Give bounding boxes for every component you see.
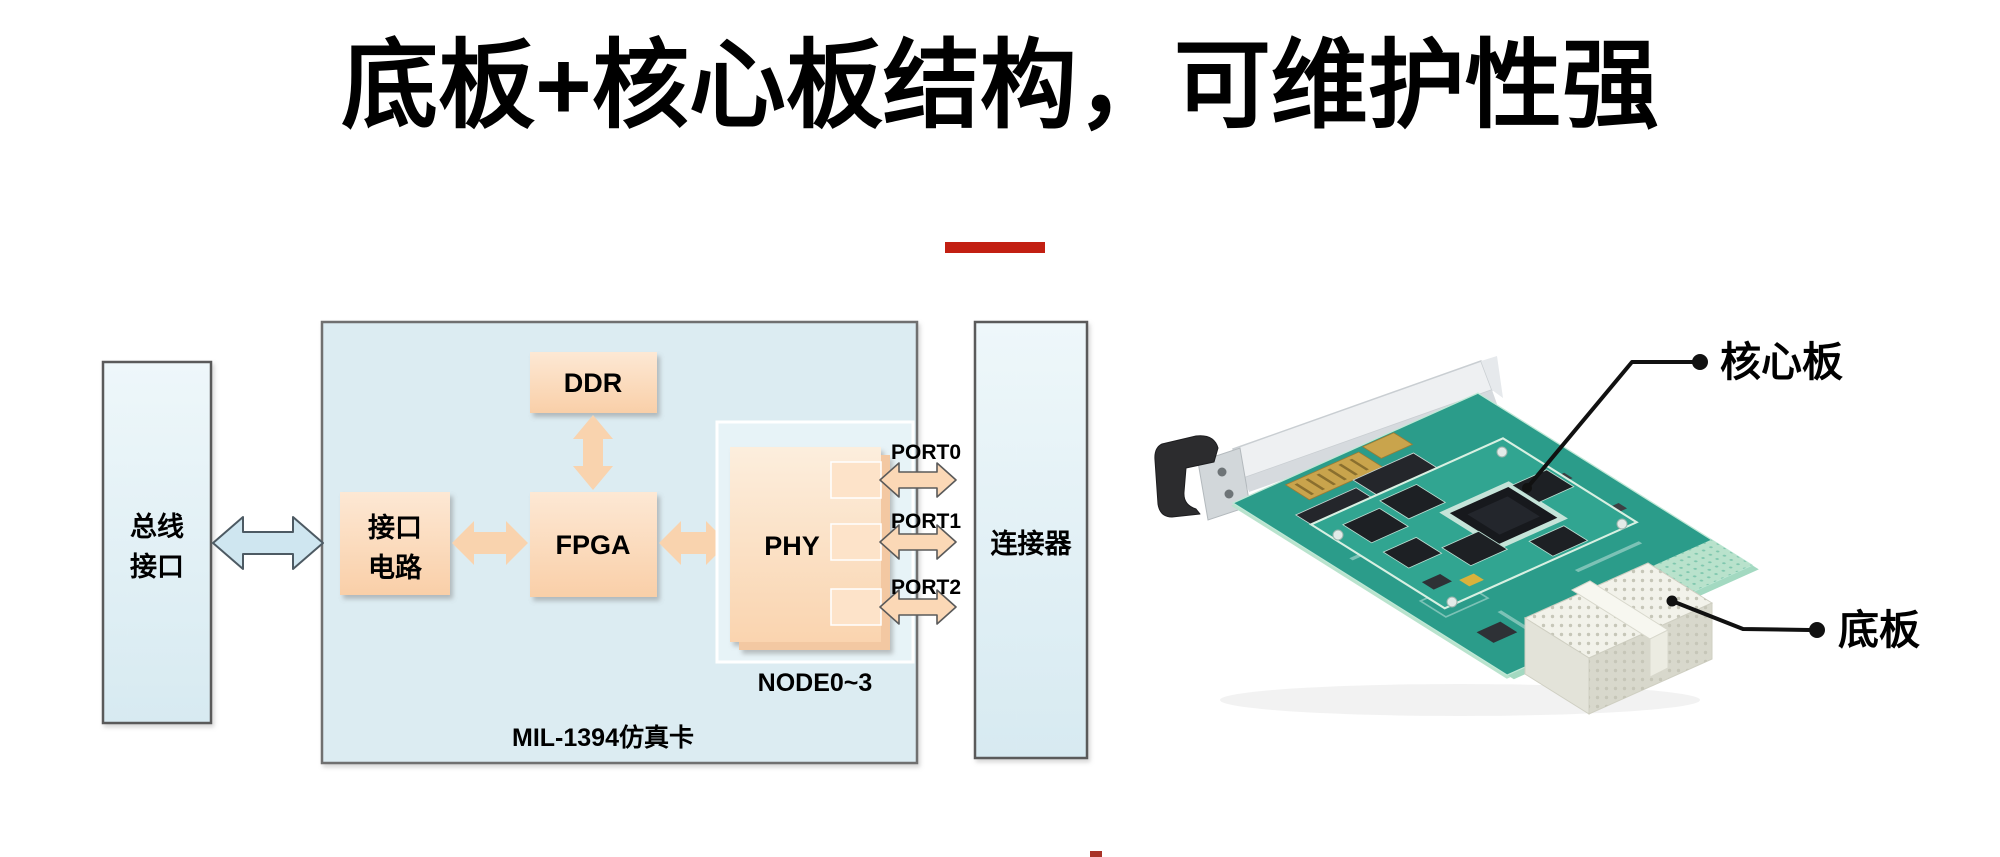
interface-circuit-label-line2: 电路 <box>368 552 423 583</box>
core-board-callout-dot <box>1692 354 1708 370</box>
title-divider <box>945 242 1045 253</box>
base-board-callout-label: 底板 <box>1838 607 1920 653</box>
node-group-label: NODE0~3 <box>758 669 873 697</box>
core-board-callout-target-dot <box>1522 483 1532 493</box>
phy-label: PHY <box>764 531 820 561</box>
bus-interface-label-line2: 接口 <box>130 552 184 582</box>
fpga-label: FPGA <box>555 530 630 560</box>
block-diagram: MIL-1394仿真卡 总线 接口 接口 电路 DDR FPGA <box>103 322 1087 763</box>
phy-port-stub-0 <box>831 462 881 498</box>
port-arrows: PORT0 PORT1 PORT2 <box>880 441 961 624</box>
bus-interface-label-line1: 总线 <box>130 512 184 542</box>
port0-label: PORT0 <box>891 441 961 464</box>
phy-port-stub-2 <box>831 589 881 625</box>
core-board-callout-label: 核心板 <box>1720 339 1843 385</box>
phy-port-stubs <box>831 462 881 625</box>
bottom-edge-red-mark <box>1090 851 1102 857</box>
bus-card-double-arrow <box>213 517 323 569</box>
interface-circuit-label-line1: 接口 <box>368 513 422 543</box>
ddr-label: DDR <box>564 368 623 398</box>
connector-label: 连接器 <box>991 528 1073 559</box>
port2-label: PORT2 <box>891 576 961 599</box>
base-board-callout-dot <box>1809 622 1825 638</box>
mil1394-card-label: MIL-1394仿真卡 <box>512 724 694 752</box>
slide-graphics: MIL-1394仿真卡 总线 接口 接口 电路 DDR FPGA <box>0 0 2000 857</box>
bus-interface-box <box>103 362 211 723</box>
port1-label: PORT1 <box>891 510 961 533</box>
base-board-callout-target-dot <box>1667 596 1678 607</box>
pcb-photo: 核心板 底板 <box>1155 339 1920 716</box>
slide: 底板+核心板结构，可维护性强 <box>0 0 2000 857</box>
phy-port-stub-1 <box>831 524 881 560</box>
